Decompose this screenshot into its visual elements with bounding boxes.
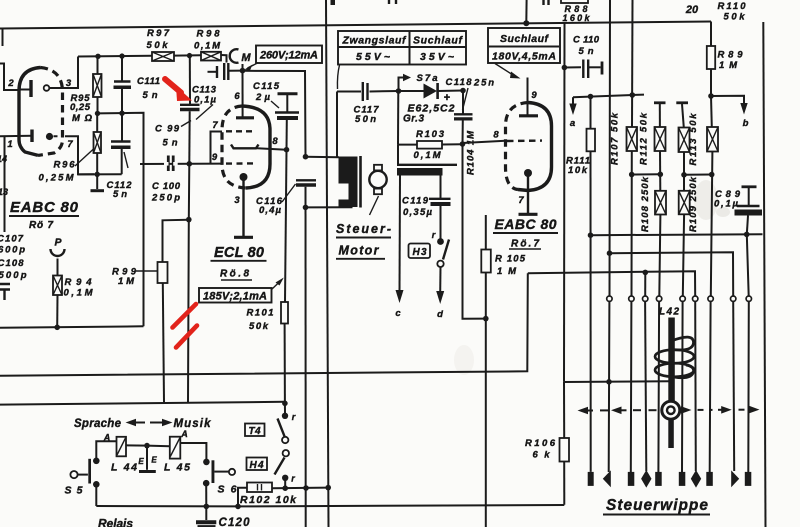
svg-text:50n: 50n (355, 114, 376, 125)
svg-text:0,4µ: 0,4µ (259, 205, 282, 216)
svg-text:C107: C107 (0, 234, 24, 245)
svg-text:R108 250k: R108 250k (640, 176, 651, 232)
svg-text:Suchlauf: Suchlauf (500, 33, 550, 45)
svg-text:EABC 80: EABC 80 (10, 199, 79, 216)
svg-text:C111: C111 (137, 76, 160, 87)
svg-text:C120: C120 (219, 517, 251, 527)
svg-text:C115: C115 (253, 81, 280, 92)
svg-text:0,1µ: 0,1µ (714, 199, 739, 210)
svg-text:E: E (138, 457, 144, 466)
svg-text:3: 3 (234, 195, 240, 206)
svg-text:T4: T4 (249, 426, 261, 437)
svg-text:20: 20 (685, 4, 699, 16)
svg-text:C118: C118 (446, 77, 473, 88)
svg-text:C108: C108 (0, 258, 24, 269)
svg-text:R101: R101 (247, 308, 274, 319)
svg-text:7: 7 (67, 139, 73, 150)
svg-text:1: 1 (7, 139, 12, 150)
svg-text:Gr.3: Gr.3 (403, 114, 424, 125)
svg-text:0,25: 0,25 (70, 102, 91, 113)
svg-text:R102 10k: R102 10k (240, 494, 297, 506)
svg-text:R107 50k: R107 50k (610, 112, 621, 165)
svg-text:Steuerwippe: Steuerwippe (606, 497, 708, 514)
svg-text:35V~: 35V~ (420, 51, 454, 63)
svg-text:3: 3 (66, 78, 72, 89)
svg-text:Rö 7: Rö 7 (29, 220, 53, 231)
svg-text:C 110: C 110 (573, 35, 600, 46)
svg-text:R89: R89 (718, 50, 744, 61)
svg-text:9: 9 (212, 152, 218, 163)
svg-text:P: P (54, 237, 62, 249)
svg-text:d: d (437, 309, 443, 320)
svg-text:EABC 80: EABC 80 (495, 216, 557, 232)
svg-text:25n: 25n (473, 78, 494, 89)
svg-text:50k: 50k (147, 40, 169, 51)
svg-text:L 44: L 44 (111, 462, 137, 474)
svg-text:10k: 10k (568, 165, 588, 176)
svg-text:C 99: C 99 (155, 124, 180, 135)
svg-text:8: 8 (493, 130, 499, 141)
svg-text:14: 14 (0, 154, 7, 164)
svg-text:R94: R94 (65, 277, 93, 288)
svg-text:1M: 1M (118, 276, 135, 287)
svg-text:0,1M: 0,1M (64, 288, 94, 299)
svg-text:H3: H3 (413, 247, 427, 258)
svg-text:C112: C112 (107, 180, 133, 191)
svg-text:r: r (291, 474, 295, 484)
svg-text:50k: 50k (249, 321, 269, 332)
svg-text:b: b (743, 118, 749, 129)
svg-text:R112 50k: R112 50k (639, 112, 650, 165)
svg-text:Rö.7: Rö.7 (511, 239, 539, 250)
svg-text:160k: 160k (563, 13, 591, 23)
svg-text:R 105: R 105 (495, 254, 526, 265)
svg-text:L 45: L 45 (164, 462, 190, 474)
svg-text:260V;12mA: 260V;12mA (259, 50, 318, 62)
svg-text:1M: 1M (719, 60, 738, 71)
svg-text:2: 2 (7, 78, 14, 89)
svg-text:R113 50k: R113 50k (688, 113, 699, 166)
svg-text:8: 8 (272, 136, 278, 147)
svg-text:r: r (432, 230, 436, 240)
svg-text:A: A (180, 429, 188, 439)
svg-text:0,1M: 0,1M (194, 41, 221, 52)
svg-text:185V;2,1mA: 185V;2,1mA (203, 291, 267, 303)
svg-text:Steuer-: Steuer- (336, 222, 391, 236)
svg-text:+: + (444, 92, 450, 104)
svg-text:7: 7 (518, 195, 524, 206)
svg-text:R109 250k: R109 250k (688, 176, 699, 232)
svg-text:E: E (151, 456, 157, 465)
svg-text:Zwangslauf: Zwangslauf (342, 35, 408, 47)
svg-text:C 100: C 100 (152, 181, 181, 192)
svg-text:H4: H4 (250, 460, 264, 471)
svg-text:180V,4,5mA: 180V,4,5mA (492, 51, 556, 63)
svg-text:0,1µ: 0,1µ (194, 95, 217, 106)
svg-text:r: r (292, 412, 296, 422)
svg-text:Musik: Musik (174, 418, 212, 430)
svg-text:R97: R97 (147, 28, 170, 39)
svg-text:a: a (570, 118, 575, 129)
svg-text:50k: 50k (724, 12, 746, 23)
svg-text:C119: C119 (402, 196, 429, 207)
svg-text:R98: R98 (197, 29, 221, 40)
svg-text:Rö.8: Rö.8 (220, 269, 249, 280)
svg-text:M: M (241, 52, 251, 64)
svg-text:c: c (395, 308, 401, 319)
svg-text:0,35µ: 0,35µ (403, 207, 433, 218)
svg-text:Relais: Relais (98, 517, 133, 527)
svg-text:0,1M: 0,1M (414, 150, 442, 161)
svg-text:6: 6 (234, 91, 240, 102)
svg-text:9: 9 (531, 90, 537, 101)
svg-text:R96: R96 (54, 160, 76, 171)
svg-text:Sprache: Sprache (74, 418, 122, 430)
svg-text:ECL 80: ECL 80 (214, 245, 264, 261)
svg-text:55V~: 55V~ (356, 51, 390, 63)
svg-text:L42: L42 (659, 307, 679, 318)
svg-text:Suchlauf: Suchlauf (413, 35, 464, 47)
svg-text:7: 7 (212, 120, 218, 131)
svg-text:S7a: S7a (417, 73, 438, 84)
svg-text:13: 13 (0, 187, 8, 197)
svg-text:R104 1M: R104 1M (466, 130, 477, 175)
svg-text:Motor: Motor (339, 244, 380, 258)
